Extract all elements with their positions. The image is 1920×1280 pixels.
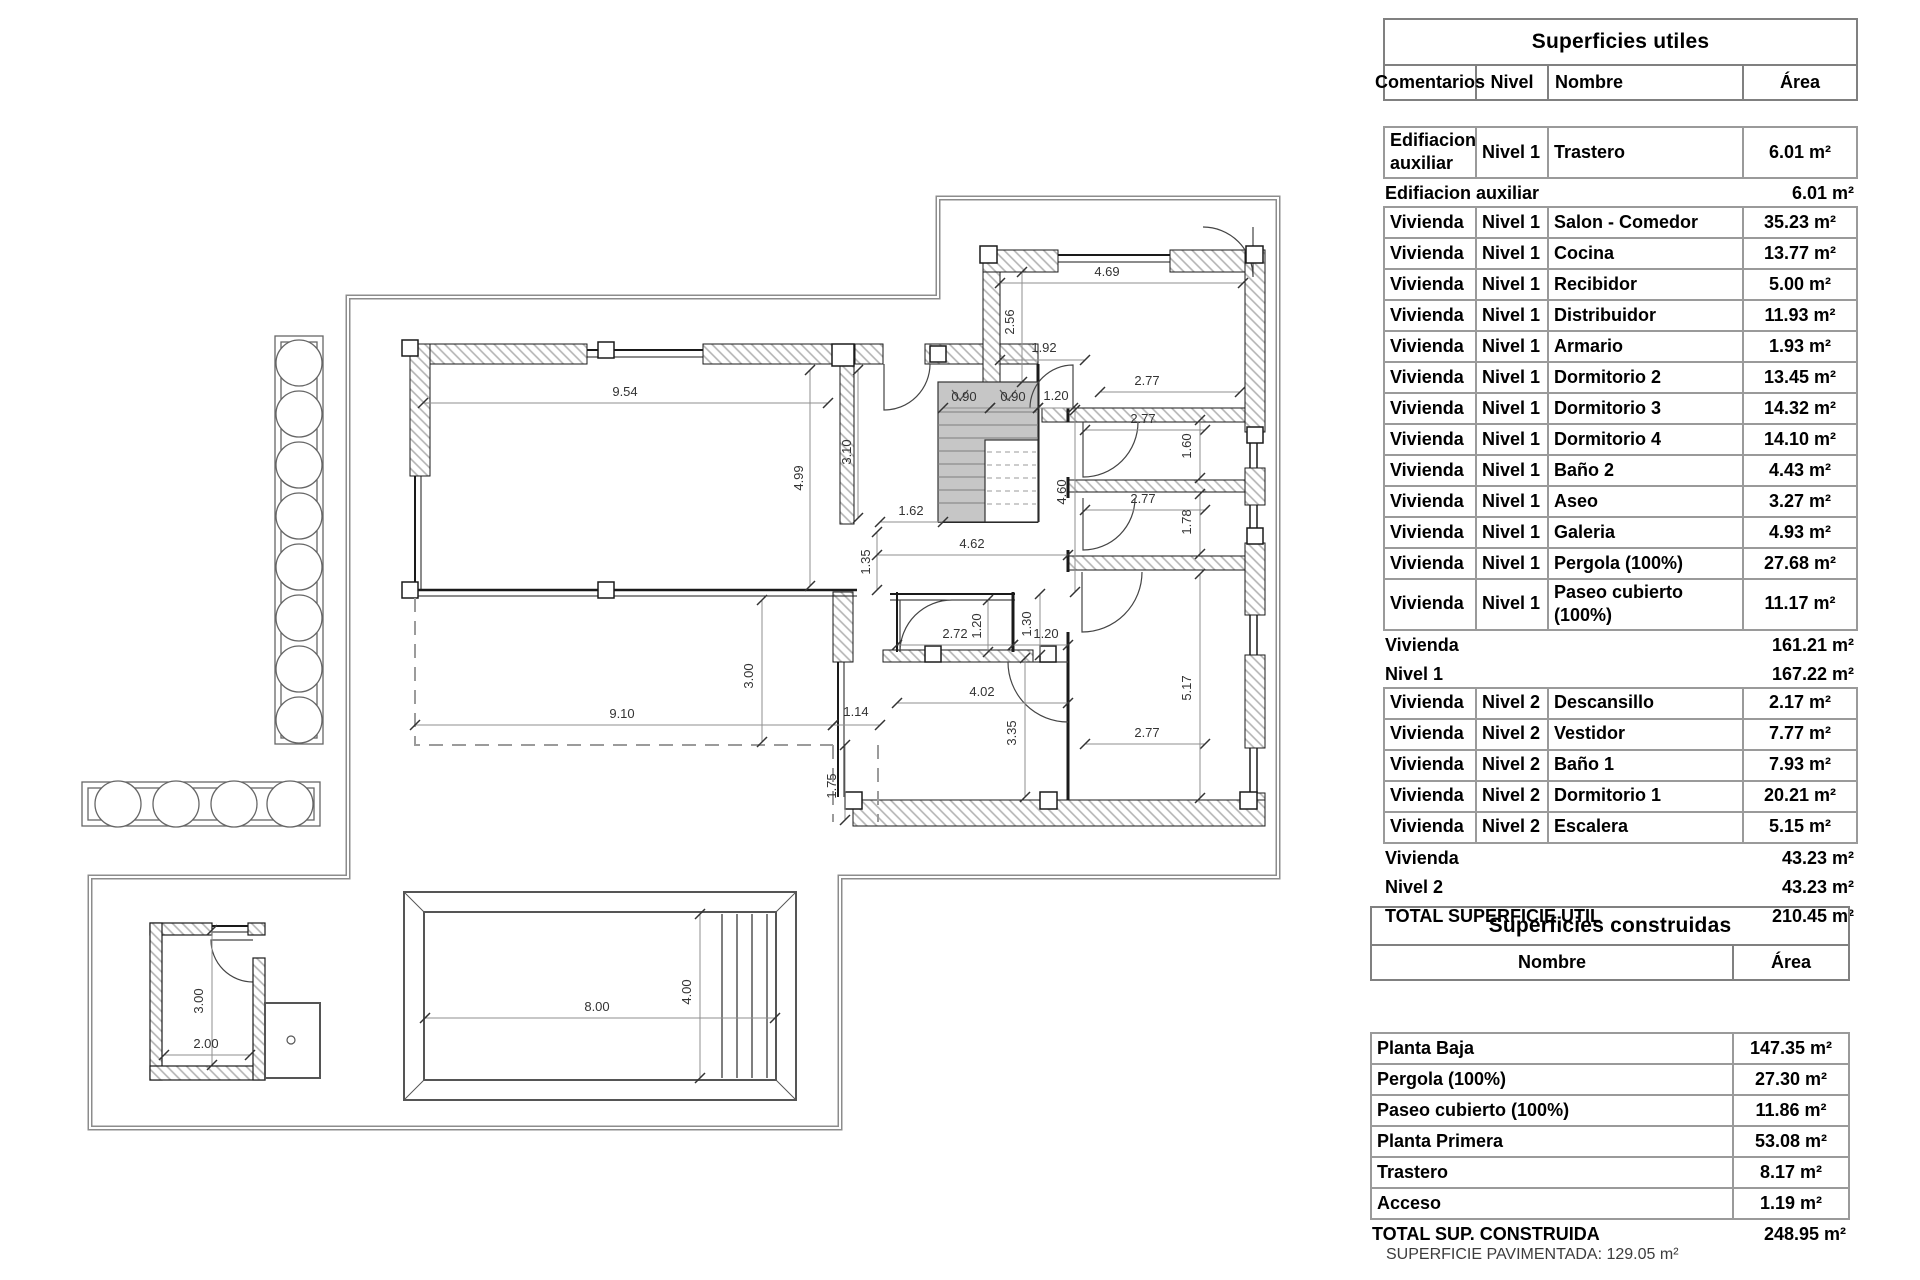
table-cell: Armario: [1549, 332, 1744, 361]
table-cell: Nivel 1: [1477, 487, 1549, 516]
table-row: ViviendaNivel 1Galeria4.93 m²: [1383, 516, 1858, 549]
table-row: ViviendaNivel 2Dormitorio 120.21 m²: [1383, 780, 1858, 813]
dimension-label: 3.00: [191, 988, 206, 1013]
dimension-label: 4.02: [969, 684, 994, 699]
planters: [82, 336, 323, 827]
summary-row: Nivel 1167.22 m²: [1383, 660, 1858, 689]
table-cell: Trastero: [1549, 128, 1744, 177]
floorplan-sheet: 9.544.993.101.621.354.624.604.692.561.92…: [0, 0, 1920, 1280]
table-cell: 27.30 m²: [1734, 1065, 1848, 1094]
summary-row: Vivienda43.23 m²: [1383, 844, 1858, 873]
dimension-label: 1.78: [1179, 509, 1194, 534]
table-row: ViviendaNivel 1Dormitorio 314.32 m²: [1383, 392, 1858, 425]
table-cell: Vivienda: [1385, 782, 1477, 811]
table-cell: Nivel 2: [1477, 813, 1549, 842]
dimension-label: 3.35: [1004, 720, 1019, 745]
table-cell: Cocina: [1549, 239, 1744, 268]
table-cell: Nivel 1: [1477, 456, 1549, 485]
table-cell: 4.43 m²: [1744, 456, 1856, 485]
table-cell: Recibidor: [1549, 270, 1744, 299]
column-header: Nombre: [1372, 946, 1734, 979]
summary-row: Edifiacion auxiliar6.01 m²: [1383, 179, 1858, 208]
dimension-label: 1.35: [858, 549, 873, 574]
dimension-label: 1.20: [1043, 388, 1068, 403]
table-row: ViviendaNivel 1Distribuidor11.93 m²: [1383, 299, 1858, 332]
table-cell: 6.01 m²: [1744, 128, 1856, 177]
table-row: ViviendaNivel 1Dormitorio 414.10 m²: [1383, 423, 1858, 456]
table-cell: 8.17 m²: [1734, 1158, 1848, 1187]
windows-and-partitions: [412, 255, 1257, 800]
dimension-label: 3.10: [839, 439, 854, 464]
table-cell: Nivel 1: [1477, 270, 1549, 299]
summary-label: Nivel 2: [1385, 877, 1443, 898]
table-cell: 7.77 m²: [1744, 720, 1856, 749]
dimension-label: 9.54: [612, 384, 637, 399]
table-cell: Vivienda: [1385, 751, 1477, 780]
dimension-label: 4.62: [959, 536, 984, 551]
summary-label: Edifiacion auxiliar: [1385, 183, 1539, 204]
dimension-label: 2.77: [1134, 725, 1159, 740]
table-cell: Nivel 1: [1477, 425, 1549, 454]
table-cell: Escalera: [1549, 813, 1744, 842]
dimension-label: 0.90: [1000, 389, 1025, 404]
table-row: Trastero8.17 m²: [1370, 1156, 1850, 1189]
table-cell: 147.35 m²: [1734, 1034, 1848, 1063]
table-cell: Paseo cubierto (100%): [1549, 580, 1744, 629]
column-header: Nombre: [1549, 66, 1744, 99]
table-row: Planta Primera53.08 m²: [1370, 1125, 1850, 1158]
table-cell: Dormitorio 1: [1549, 782, 1744, 811]
table-row: ViviendaNivel 1Pergola (100%)27.68 m²: [1383, 547, 1858, 580]
floor-plan-drawing: 9.544.993.101.621.354.624.604.692.561.92…: [0, 0, 1360, 1280]
dimension-label: 2.72: [942, 626, 967, 641]
table-row: ViviendaNivel 2Descansillo2.17 m²: [1383, 687, 1858, 720]
swimming-pool: [404, 892, 796, 1100]
table-title: Superficies utiles: [1383, 18, 1858, 66]
table-cell: Vestidor: [1549, 720, 1744, 749]
table-cell: Vivienda: [1385, 301, 1477, 330]
table-row: Planta Baja147.35 m²: [1370, 1032, 1850, 1065]
table-cell: Pergola (100%): [1549, 549, 1744, 578]
dimension-label: 1.20: [1033, 626, 1058, 641]
table-cell: 3.27 m²: [1744, 487, 1856, 516]
table-cell: Aseo: [1549, 487, 1744, 516]
table-row: ViviendaNivel 2Baño 17.93 m²: [1383, 749, 1858, 782]
dimension-label: 1.20: [969, 613, 984, 638]
summary-value: 43.23 m²: [1782, 877, 1854, 898]
table-cell: Vivienda: [1385, 363, 1477, 392]
table-cell: Vivienda: [1385, 270, 1477, 299]
table-title: Superficies construidas: [1370, 906, 1850, 946]
table-cell: Dormitorio 4: [1549, 425, 1744, 454]
dimension-label: 9.10: [609, 706, 634, 721]
summary-row: Nivel 243.23 m²: [1383, 873, 1858, 902]
table-row: ViviendaNivel 1Recibidor5.00 m²: [1383, 268, 1858, 301]
table-cell: 27.68 m²: [1744, 549, 1856, 578]
table-cell: Vivienda: [1385, 208, 1477, 237]
table-cell: Distribuidor: [1549, 301, 1744, 330]
dimension-label: 2.77: [1134, 373, 1159, 388]
table-header: ComentariosNivelNombreÁrea: [1383, 66, 1858, 101]
table-cell: Nivel 2: [1477, 751, 1549, 780]
table-cell: Vivienda: [1385, 394, 1477, 423]
dimension-label: 4.99: [791, 465, 806, 490]
table-cell: 14.10 m²: [1744, 425, 1856, 454]
summary-label: Nivel 1: [1385, 664, 1443, 685]
dimension-label: 1.92: [1031, 340, 1056, 355]
table-cell: Descansillo: [1549, 689, 1744, 718]
table-cell: Nivel 2: [1477, 689, 1549, 718]
dimension-label: 1.14: [843, 704, 868, 719]
dimension-label: 1.75: [824, 773, 839, 798]
table-cell: Pergola (100%): [1372, 1065, 1734, 1094]
table-cell: 20.21 m²: [1744, 782, 1856, 811]
table-row: ViviendaNivel 1Aseo3.27 m²: [1383, 485, 1858, 518]
table-cell: Paseo cubierto (100%): [1372, 1096, 1734, 1125]
table-cell: 5.00 m²: [1744, 270, 1856, 299]
table-cell: Planta Primera: [1372, 1127, 1734, 1156]
table-cell: Vivienda: [1385, 720, 1477, 749]
table-cell: 1.19 m²: [1734, 1189, 1848, 1218]
superficies-construidas-table: Superficies construidas NombreÁrea Plant…: [1370, 906, 1850, 1249]
table-cell: Baño 2: [1549, 456, 1744, 485]
table-cell: Planta Baja: [1372, 1034, 1734, 1063]
table-cell: 4.93 m²: [1744, 518, 1856, 547]
table-row: ViviendaNivel 1Salon - Comedor35.23 m²: [1383, 206, 1858, 239]
table-row: ViviendaNivel 1Paseo cubierto (100%)11.1…: [1383, 578, 1858, 631]
table-cell: 5.15 m²: [1744, 813, 1856, 842]
paved-surface-note: SUPERFICIE PAVIMENTADA: 129.05 m²: [1386, 1246, 1679, 1264]
dimension-label: 1.30: [1019, 611, 1034, 636]
table-cell: Vivienda: [1385, 487, 1477, 516]
table-cell: Nivel 1: [1477, 363, 1549, 392]
superficies-utiles-table: Superficies utiles ComentariosNivelNombr…: [1383, 18, 1858, 931]
table-cell: 13.77 m²: [1744, 239, 1856, 268]
table-row: ViviendaNivel 2Escalera5.15 m²: [1383, 811, 1858, 844]
table-cell: 14.32 m²: [1744, 394, 1856, 423]
table-cell: 13.45 m²: [1744, 363, 1856, 392]
summary-value: 248.95 m²: [1764, 1224, 1846, 1245]
table-cell: Vivienda: [1385, 425, 1477, 454]
summary-row: Vivienda161.21 m²: [1383, 631, 1858, 660]
table-row: ViviendaNivel 1Baño 24.43 m²: [1383, 454, 1858, 487]
table-cell: 1.93 m²: [1744, 332, 1856, 361]
summary-label: Vivienda: [1385, 848, 1459, 869]
table-cell: Vivienda: [1385, 456, 1477, 485]
dimension-label: 1.60: [1179, 433, 1194, 458]
dimension-label: 0.90: [951, 389, 976, 404]
table-cell: 11.17 m²: [1744, 580, 1856, 629]
table-cell: Vivienda: [1385, 518, 1477, 547]
table-cell: 11.93 m²: [1744, 301, 1856, 330]
table-cell: Nivel 1: [1477, 239, 1549, 268]
table-cell: Nivel 2: [1477, 720, 1549, 749]
dimension-label: 2.77: [1130, 411, 1155, 426]
table-cell: 11.86 m²: [1734, 1096, 1848, 1125]
dimension-label: 5.17: [1179, 675, 1194, 700]
table-cell: Vivienda: [1385, 689, 1477, 718]
table-cell: Galeria: [1549, 518, 1744, 547]
table-cell: Vivienda: [1385, 813, 1477, 842]
dimension-label: 1.62: [898, 503, 923, 518]
dimension-label: 8.00: [584, 999, 609, 1014]
table-cell: 53.08 m²: [1734, 1127, 1848, 1156]
table-row: Acceso1.19 m²: [1370, 1187, 1850, 1220]
table-cell: Nivel 1: [1477, 332, 1549, 361]
table-cell: Nivel 1: [1477, 301, 1549, 330]
table-row: Paseo cubierto (100%)11.86 m²: [1370, 1094, 1850, 1127]
table-cell: Edifiacion auxiliar: [1385, 128, 1477, 177]
table-cell: 35.23 m²: [1744, 208, 1856, 237]
summary-label: Vivienda: [1385, 635, 1459, 656]
table-header: NombreÁrea: [1370, 946, 1850, 981]
table-cell: Dormitorio 2: [1549, 363, 1744, 392]
outbuilding: [150, 923, 320, 1080]
table-cell: Nivel 1: [1477, 580, 1549, 629]
table-cell: Vivienda: [1385, 239, 1477, 268]
column-header: Comentarios: [1385, 66, 1477, 99]
summary-value: 167.22 m²: [1772, 664, 1854, 685]
summary-row: TOTAL SUP. CONSTRUIDA248.95 m²: [1370, 1220, 1850, 1249]
table-cell: Trastero: [1372, 1158, 1734, 1187]
summary-value: 161.21 m²: [1772, 635, 1854, 656]
table-row: Pergola (100%)27.30 m²: [1370, 1063, 1850, 1096]
table-cell: Nivel 2: [1477, 782, 1549, 811]
table-cell: Salon - Comedor: [1549, 208, 1744, 237]
table-cell: Vivienda: [1385, 549, 1477, 578]
dimension-label: 4.69: [1094, 264, 1119, 279]
pergola-outline: [415, 598, 878, 822]
table-row: Edifiacion auxiliarNivel 1Trastero6.01 m…: [1383, 126, 1858, 179]
table-cell: Nivel 1: [1477, 208, 1549, 237]
summary-value: 6.01 m²: [1792, 183, 1854, 204]
table-cell: Dormitorio 3: [1549, 394, 1744, 423]
dimension-label: 2.77: [1130, 491, 1155, 506]
table-cell: 2.17 m²: [1744, 689, 1856, 718]
table-cell: Baño 1: [1549, 751, 1744, 780]
table-cell: Nivel 1: [1477, 128, 1549, 177]
table-body: Edifiacion auxiliarNivel 1Trastero6.01 m…: [1383, 126, 1858, 931]
door-arcs: [211, 227, 1253, 982]
table-row: ViviendaNivel 2Vestidor7.77 m²: [1383, 718, 1858, 751]
dimension-label: 2.56: [1002, 309, 1017, 334]
dimension-label: 4.60: [1054, 479, 1069, 504]
table-cell: Nivel 1: [1477, 518, 1549, 547]
summary-label: TOTAL SUP. CONSTRUIDA: [1372, 1224, 1600, 1245]
table-cell: Nivel 1: [1477, 394, 1549, 423]
dimension-label: 4.00: [679, 979, 694, 1004]
table-cell: Vivienda: [1385, 332, 1477, 361]
table-cell: 7.93 m²: [1744, 751, 1856, 780]
column-header: Área: [1734, 946, 1848, 979]
dimension-label: 3.00: [741, 663, 756, 688]
table-cell: Vivienda: [1385, 580, 1477, 629]
column-header: Nivel: [1477, 66, 1549, 99]
table-row: ViviendaNivel 1Armario1.93 m²: [1383, 330, 1858, 363]
table-row: ViviendaNivel 1Dormitorio 213.45 m²: [1383, 361, 1858, 394]
table-cell: Acceso: [1372, 1189, 1734, 1218]
summary-value: 43.23 m²: [1782, 848, 1854, 869]
table-body: Planta Baja147.35 m²Pergola (100%)27.30 …: [1370, 1032, 1850, 1249]
dimension-label: 2.00: [193, 1036, 218, 1051]
column-header: Área: [1744, 66, 1856, 99]
table-row: ViviendaNivel 1Cocina13.77 m²: [1383, 237, 1858, 270]
table-cell: Nivel 1: [1477, 549, 1549, 578]
